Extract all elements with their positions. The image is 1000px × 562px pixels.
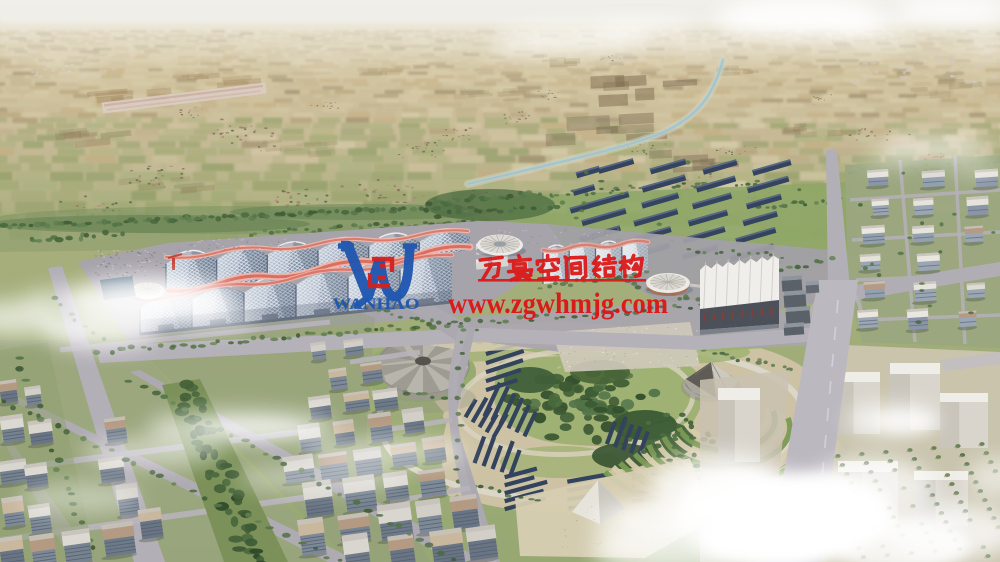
svg-text:www.zgwhmjg.com: www.zgwhmjg.com [448,287,668,320]
svg-text:WANHAO: WANHAO [333,296,420,313]
